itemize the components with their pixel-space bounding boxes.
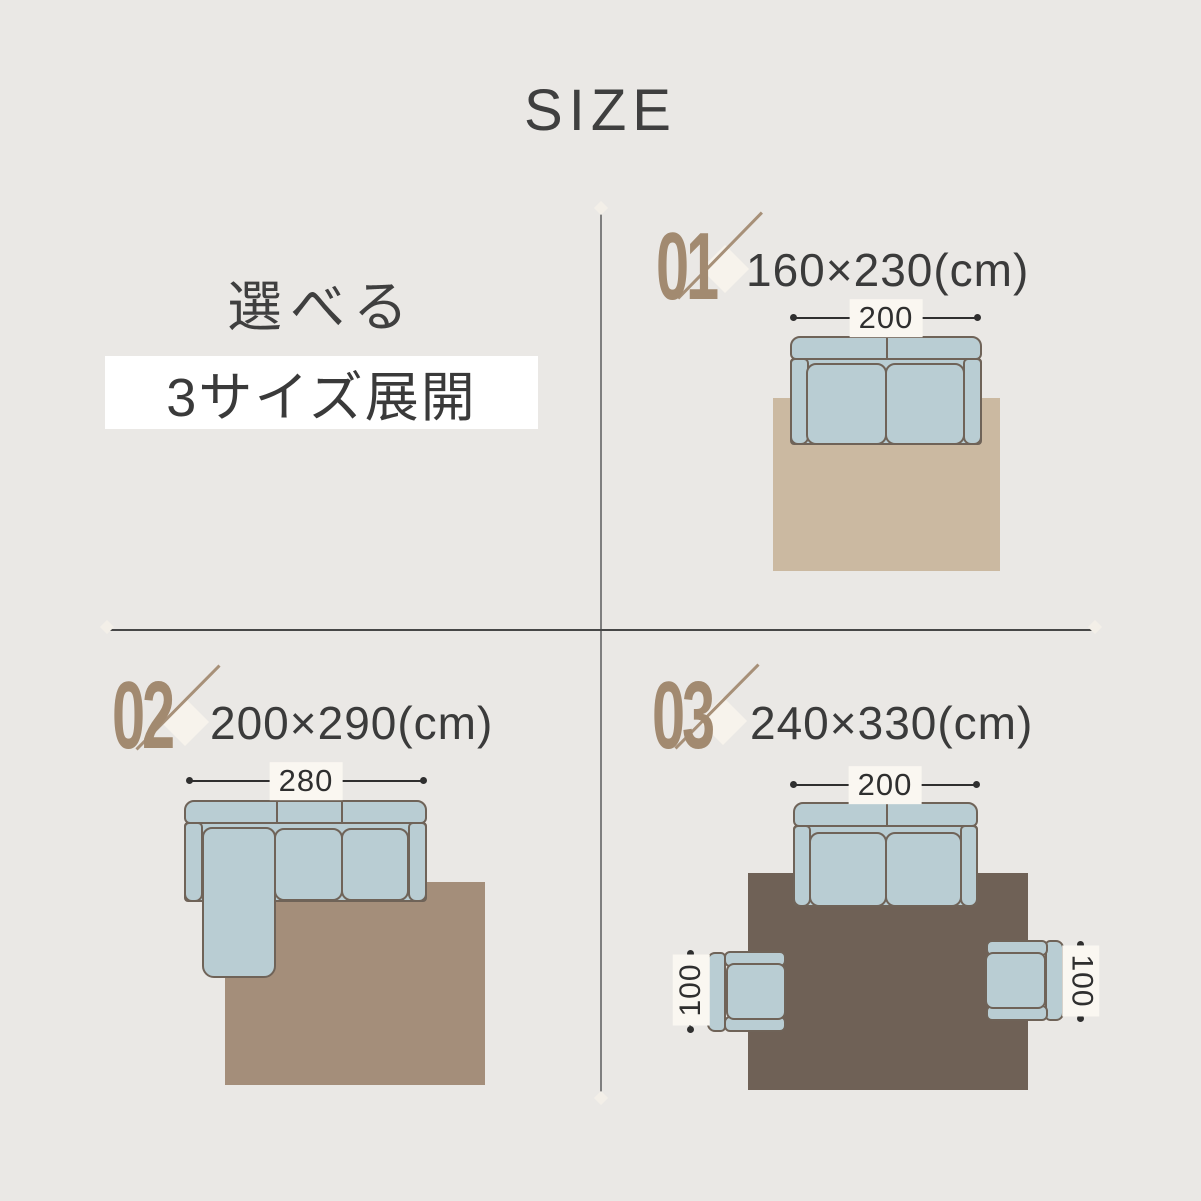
dimension-dot	[973, 781, 980, 788]
page-title: SIZE	[0, 82, 1201, 140]
dimension-label: 200	[849, 766, 922, 804]
intro-highlight-box: 3サイズ展開	[105, 356, 538, 429]
sofa-cushion	[885, 832, 962, 907]
option-number: 02	[112, 668, 172, 764]
dimension-dot	[790, 314, 797, 321]
option-number: 03	[652, 668, 712, 764]
dimension-label: 100	[1063, 945, 1100, 1016]
sofa-cushion	[809, 832, 887, 907]
intro-heading: 選べる	[105, 279, 538, 337]
sofa-armrest-right	[408, 822, 427, 902]
dimension-label: 200	[850, 299, 923, 337]
sofa-armrest-right	[960, 825, 978, 907]
sofa-cushion	[274, 828, 343, 901]
sofa-armrest-right	[963, 358, 982, 445]
divider-end-sparkle	[594, 1091, 608, 1105]
sofa-chaise-cushion	[202, 827, 276, 978]
armchair-seat	[985, 952, 1046, 1009]
dimension-dot	[974, 314, 981, 321]
option-size: 160×230(cm)	[746, 247, 1029, 293]
sofa-cushion	[341, 828, 409, 901]
dimension-label: 100	[673, 954, 710, 1025]
sofa-backrest-divider	[341, 802, 343, 822]
sofa-backrest	[184, 800, 427, 824]
size-chart: SIZE 選べる 3サイズ展開 01 160×230(cm)	[0, 0, 1201, 1201]
vertical-divider	[600, 208, 602, 1100]
option-size: 200×290(cm)	[210, 700, 493, 746]
divider-end-sparkle	[100, 620, 114, 634]
dimension-dot	[790, 781, 797, 788]
divider-end-sparkle	[594, 201, 608, 215]
sofa-cushion	[806, 363, 887, 445]
dimension-dot	[420, 777, 427, 784]
sofa-backrest-divider	[886, 804, 888, 825]
dimension-dot	[687, 1026, 694, 1033]
sofa-armrest-left	[184, 822, 203, 902]
option-number: 01	[656, 219, 716, 315]
sofa-backrest	[790, 336, 982, 360]
dimension-label: 280	[270, 762, 343, 800]
divider-end-sparkle	[1088, 620, 1102, 634]
sofa-backrest	[793, 802, 978, 827]
armchair-seat	[726, 963, 786, 1020]
sofa-cushion	[885, 363, 965, 445]
sofa-backrest-divider	[276, 802, 278, 822]
intro-highlight-text: 3サイズ展開	[166, 353, 476, 432]
horizontal-divider	[107, 629, 1095, 631]
option-size: 240×330(cm)	[750, 700, 1033, 746]
dimension-dot	[186, 777, 193, 784]
sofa-backrest-divider	[886, 338, 888, 358]
